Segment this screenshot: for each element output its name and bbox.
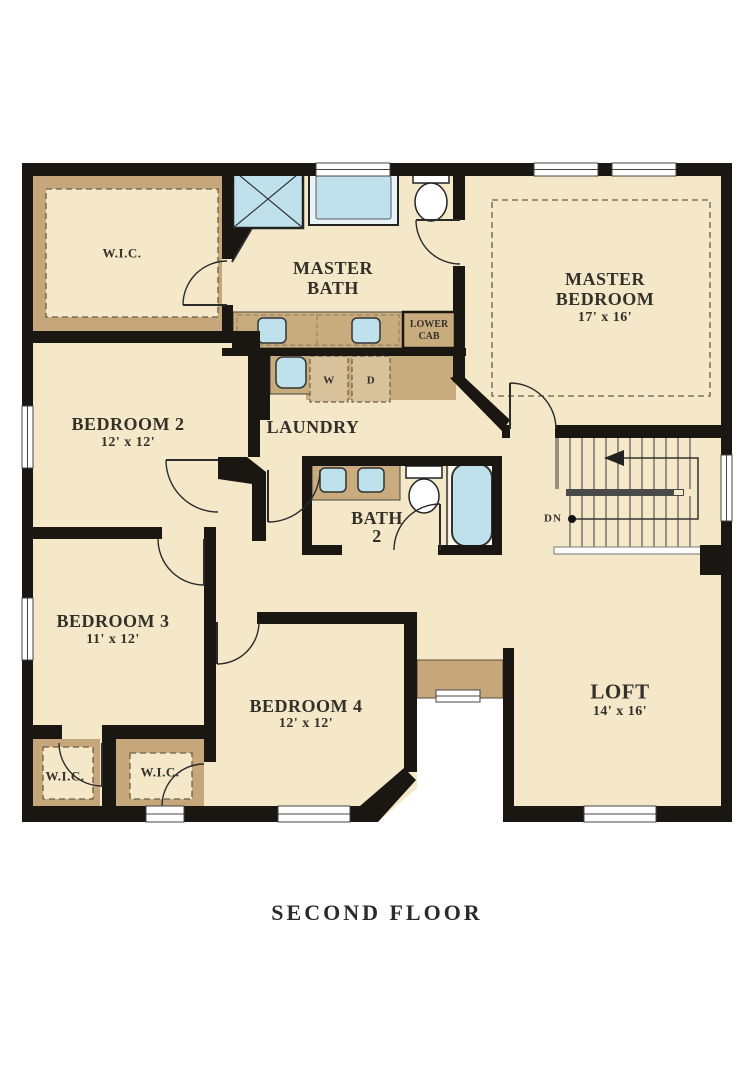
laundry-fixtures (270, 352, 456, 402)
window-bedroom2 (22, 406, 33, 468)
master-sink-left-icon (258, 318, 286, 343)
master-bedroom-dims: 17' x 16' (578, 311, 632, 325)
bath2-toilet-icon (409, 479, 439, 513)
stair-bottom-edge (554, 547, 704, 554)
lower-cab-box (403, 312, 455, 348)
laundry-sink-icon (276, 357, 306, 388)
bath2-sink-right-icon (358, 468, 384, 492)
window-stair-landing (721, 455, 732, 521)
window-bedroom3 (22, 598, 33, 660)
stair-rail (566, 489, 684, 496)
window-bedroom4 (278, 806, 350, 822)
master-bedroom-label-1: MASTER (565, 270, 645, 288)
wic-bedroom3-label: W.I.C. (45, 770, 84, 783)
dryer-label: D (367, 376, 375, 387)
bedroom3-label: BEDROOM 3 (56, 612, 169, 630)
bath2-label-1: BATH (351, 509, 403, 527)
bath2-toilet-tank-icon (406, 466, 442, 478)
master-bath-label-1: MASTER (293, 259, 373, 277)
bedroom4-dims: 12' x 12' (279, 717, 333, 731)
bedroom4-label: BEDROOM 4 (249, 697, 362, 715)
window-hall-notch (436, 690, 480, 702)
lower-cab-label-2: CAB (418, 332, 439, 342)
window-master-bedroom-1 (534, 163, 598, 176)
floor-plan-page: W.I.C. MASTER BATH MASTER BEDROOM 17' x … (0, 0, 756, 1080)
laundry-label: LAUNDRY (267, 418, 360, 436)
lower-cab-label-1: LOWER (410, 320, 448, 330)
window-loft (584, 806, 656, 822)
bedroom3-dims: 11' x 12' (86, 633, 140, 647)
window-master-bedroom-2 (612, 163, 676, 176)
bath2-tub-icon (452, 464, 492, 546)
master-sink-right-icon (352, 318, 380, 343)
window-wic-bottom (146, 806, 184, 822)
washer-label: W (323, 376, 335, 387)
loft-label: LOFT (590, 682, 649, 703)
stairs-dn-label: DN (544, 514, 562, 525)
dn-dot (568, 515, 576, 523)
window-master-tub (316, 163, 390, 176)
bath2-sink-left-icon (320, 468, 346, 492)
bedroom2-dims: 12' x 12' (101, 436, 155, 450)
master-bath-label-2: BATH (307, 279, 359, 297)
master-bedroom-label-2: BEDROOM (556, 290, 655, 308)
loft-dims: 14' x 16' (593, 705, 647, 719)
wic-master-label: W.I.C. (102, 247, 141, 260)
bath2-label-2: 2 (372, 527, 382, 545)
wic-bedroom4-label: W.I.C. (140, 766, 179, 779)
bedroom2-label: BEDROOM 2 (71, 415, 184, 433)
master-toilet-icon (415, 183, 447, 221)
plan-title: SECOND FLOOR (271, 902, 482, 924)
